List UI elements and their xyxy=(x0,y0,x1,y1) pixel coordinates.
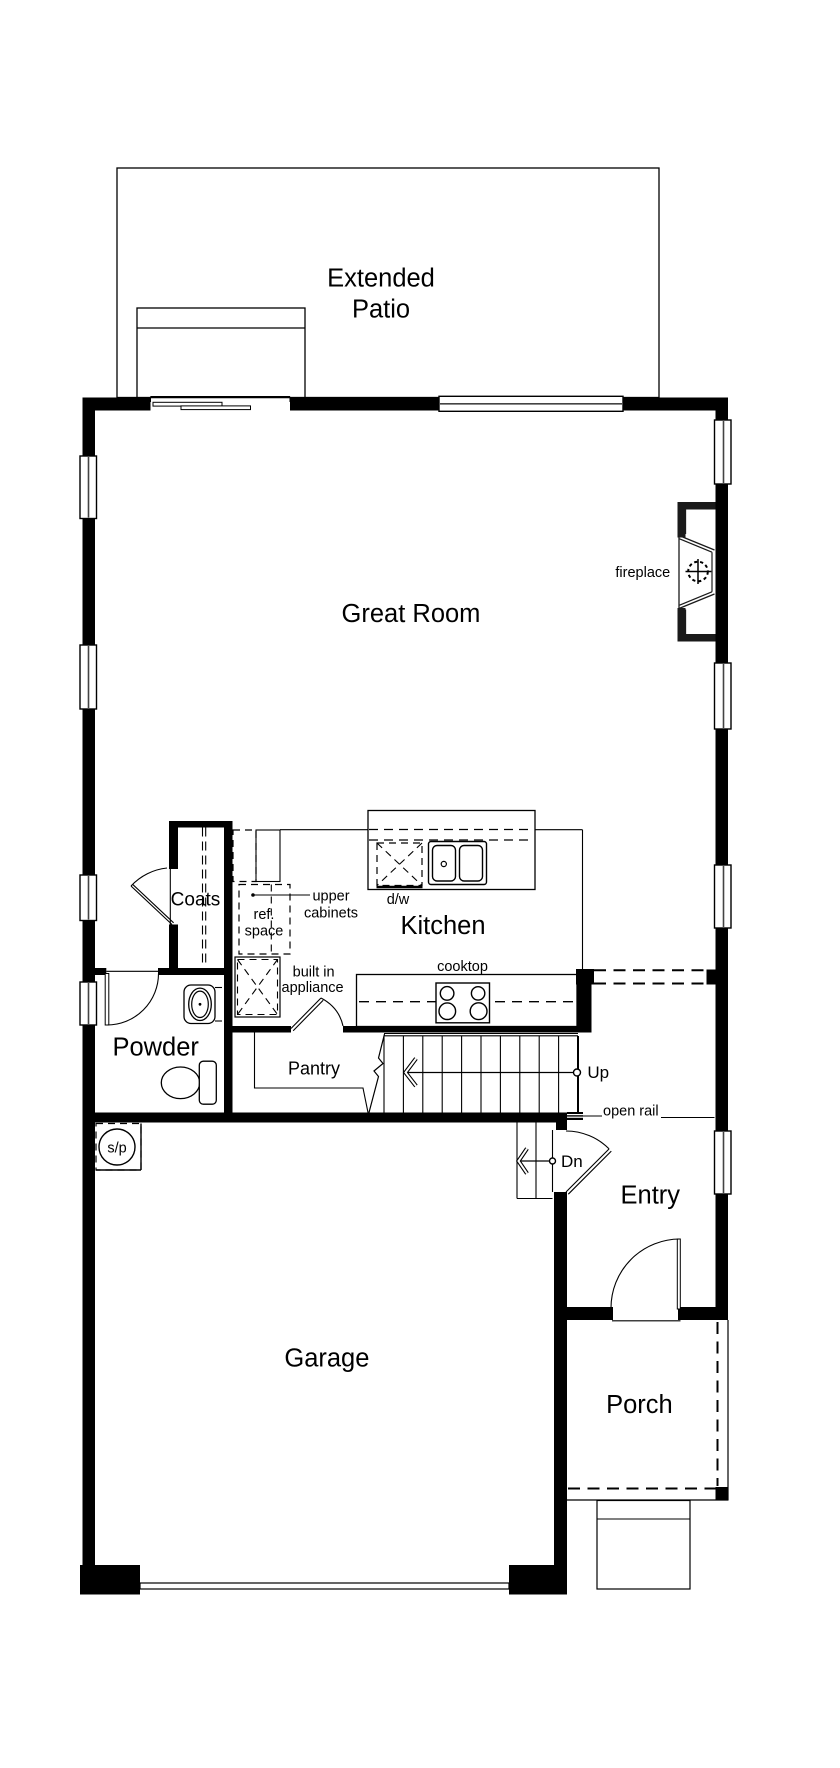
svg-text:upper: upper xyxy=(312,889,349,905)
svg-text:ref.: ref. xyxy=(254,907,275,923)
svg-text:built in: built in xyxy=(293,964,335,980)
svg-text:appliance: appliance xyxy=(282,980,344,996)
svg-text:cabinets: cabinets xyxy=(304,906,358,922)
svg-text:open rail: open rail xyxy=(603,1104,659,1120)
svg-text:Coats: Coats xyxy=(171,890,221,911)
svg-text:Dn: Dn xyxy=(561,1152,583,1171)
svg-text:Extended: Extended xyxy=(327,265,435,293)
svg-text:Up: Up xyxy=(587,1063,609,1082)
svg-text:s/p: s/p xyxy=(107,1141,126,1157)
svg-text:Pantry: Pantry xyxy=(288,1058,340,1078)
svg-text:Great Room: Great Room xyxy=(342,600,481,628)
svg-text:Porch: Porch xyxy=(606,1391,673,1419)
svg-text:fireplace: fireplace xyxy=(615,565,670,581)
svg-text:Patio: Patio xyxy=(352,296,410,324)
svg-text:Entry: Entry xyxy=(621,1182,681,1210)
svg-text:cooktop: cooktop xyxy=(437,959,488,975)
svg-text:space: space xyxy=(245,924,284,940)
svg-text:Kitchen: Kitchen xyxy=(400,912,485,940)
svg-text:Garage: Garage xyxy=(284,1344,369,1372)
svg-text:d/w: d/w xyxy=(387,892,410,908)
svg-text:Powder: Powder xyxy=(112,1033,199,1061)
